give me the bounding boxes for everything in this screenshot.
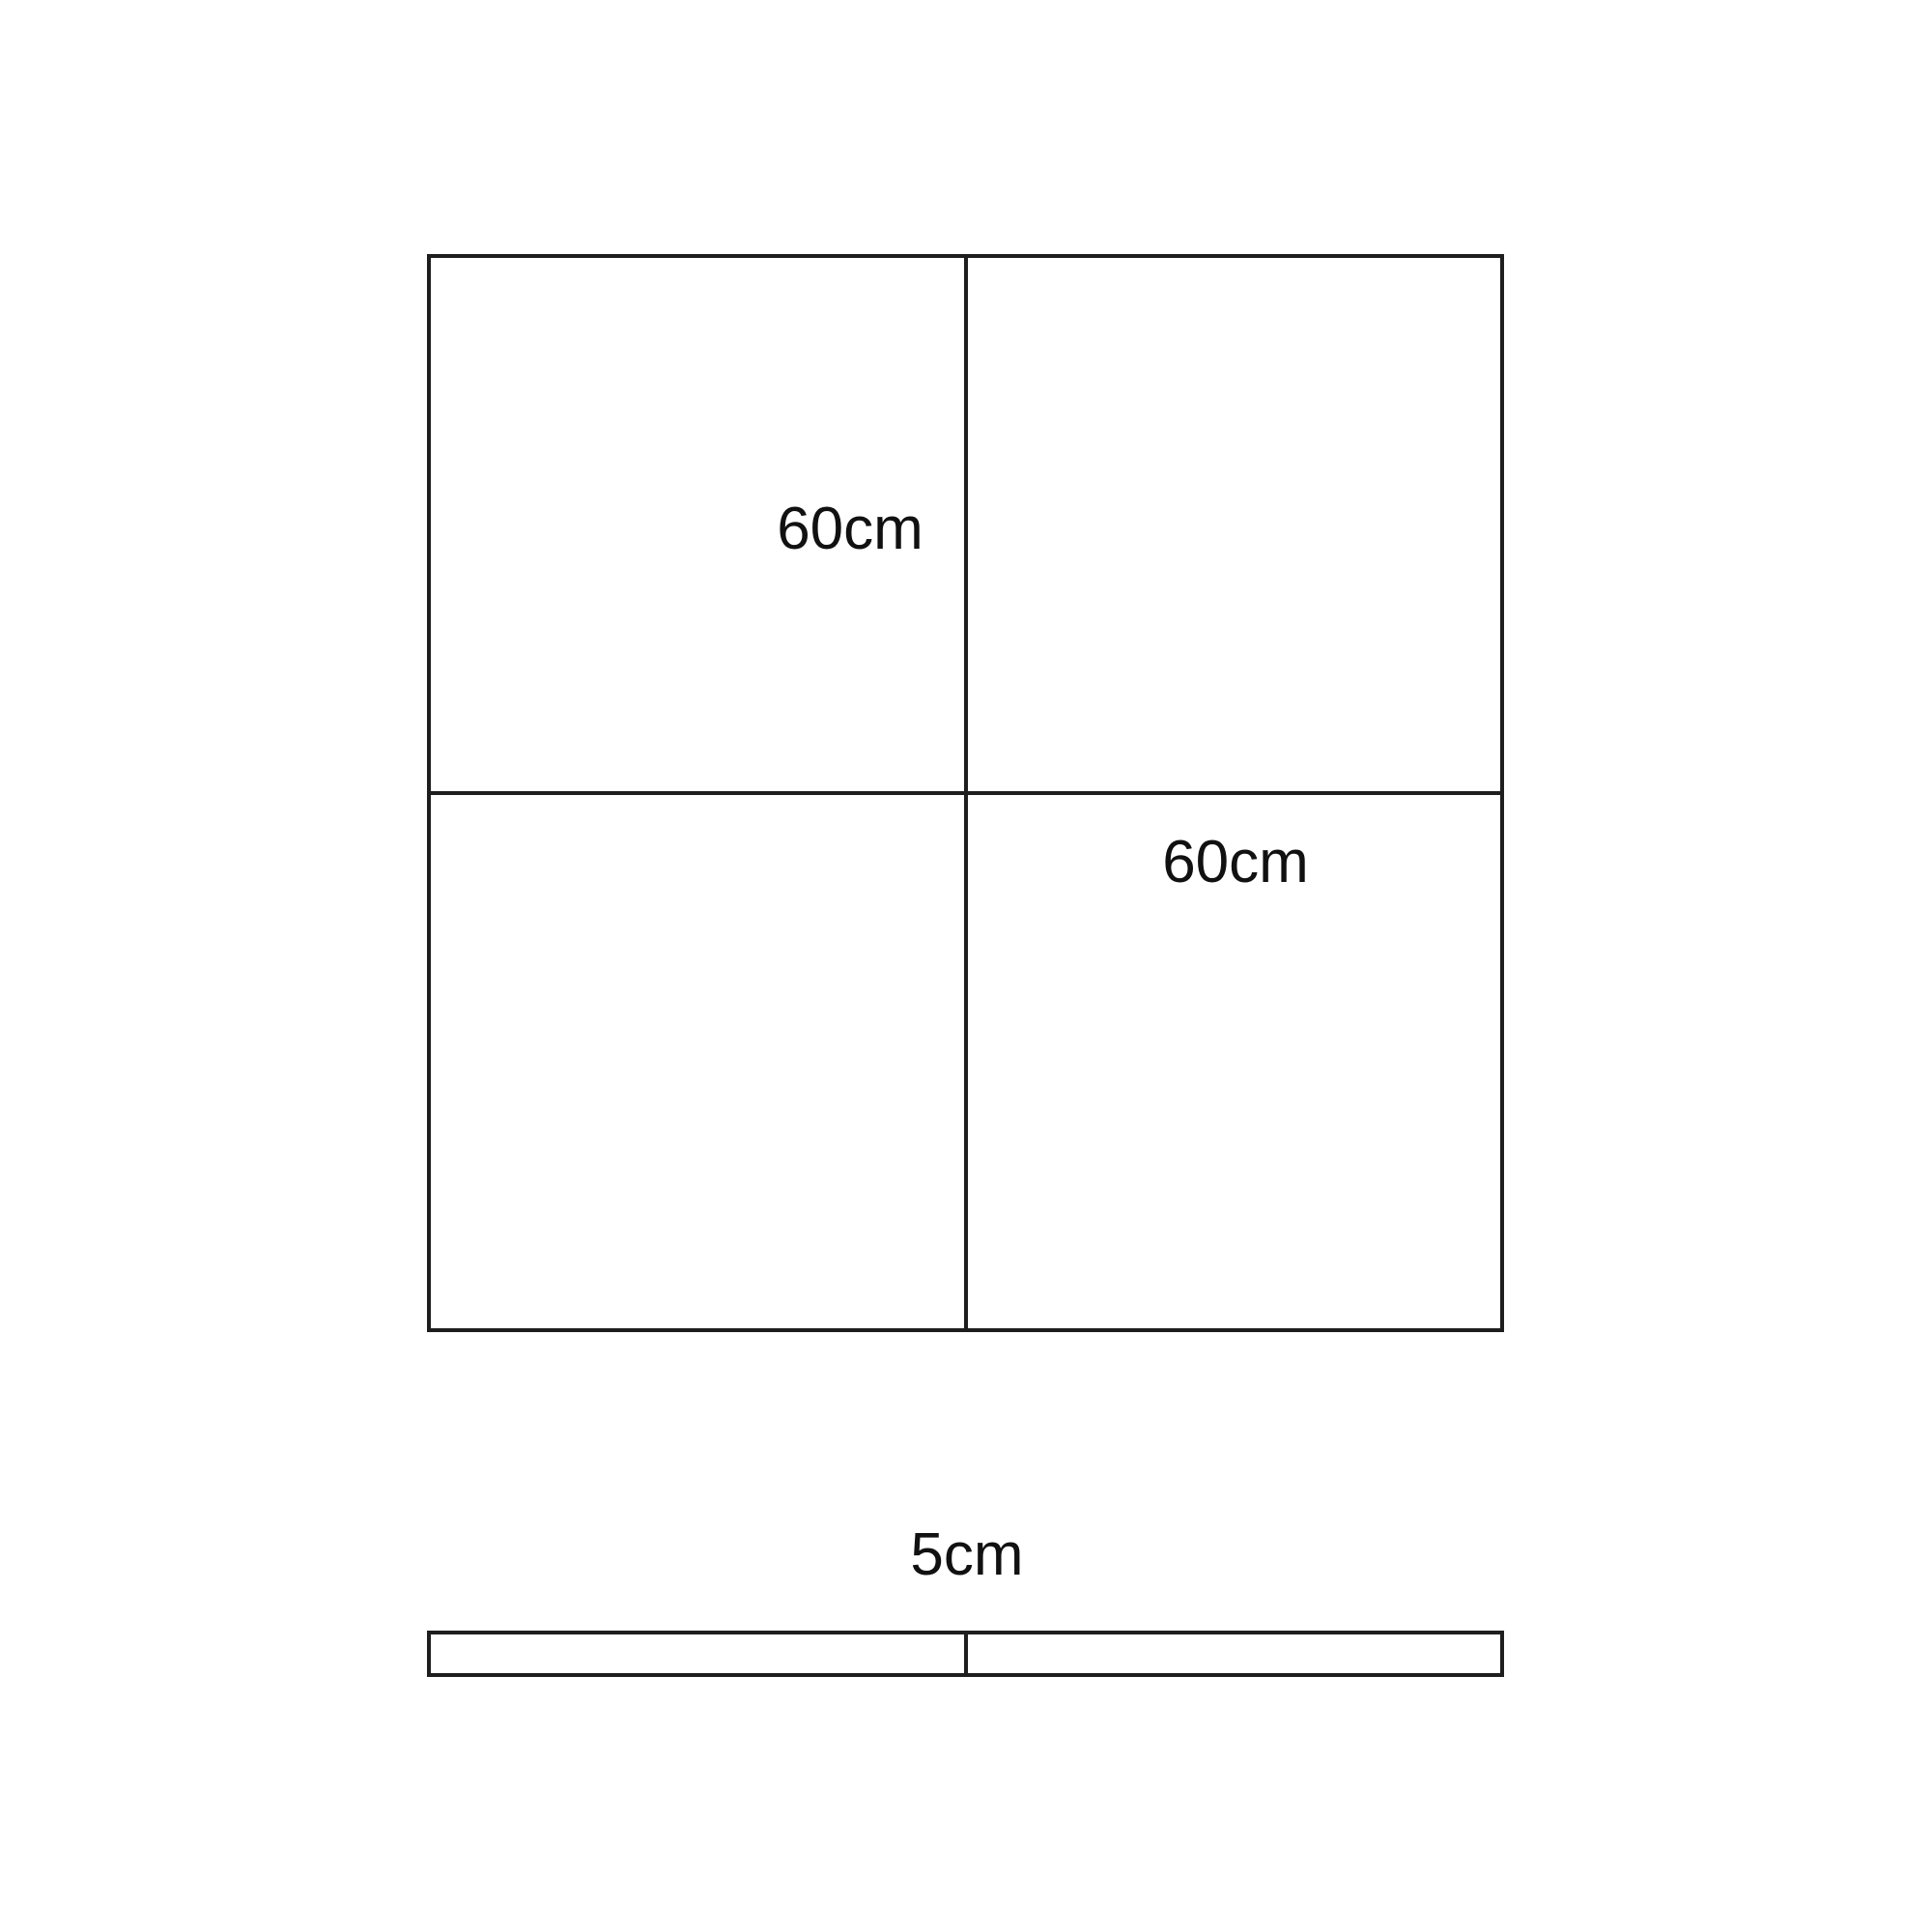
diagram-canvas: 60cm 60cm 5cm	[0, 0, 1932, 1932]
dimension-label-top-left-quadrant: 60cm	[777, 499, 923, 559]
strip-vertical-divider-line	[964, 1631, 968, 1677]
grid-horizontal-divider-line	[427, 791, 1504, 795]
strip-dimension-label: 5cm	[910, 1525, 1023, 1585]
dimension-label-bottom-right-quadrant: 60cm	[1162, 833, 1309, 893]
